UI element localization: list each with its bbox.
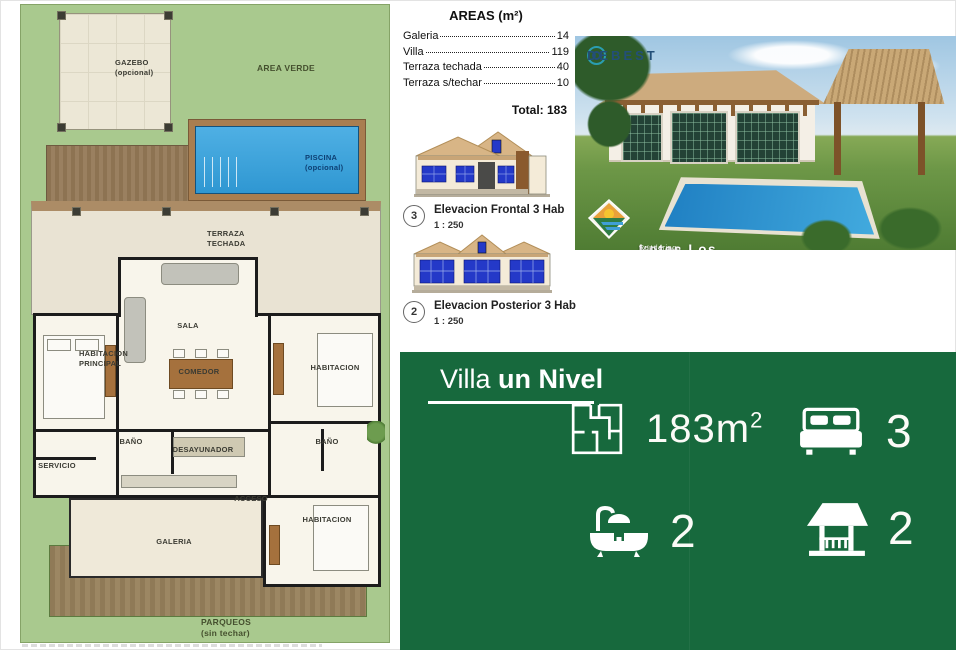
interior-wall (36, 457, 96, 460)
panel-title: Villa un Nivel (440, 364, 603, 395)
area-superscript: 2 (750, 407, 763, 432)
bed-icon (798, 407, 864, 455)
elevation-title: Elevacion Frontal 3 Hab (434, 204, 564, 218)
info-panel: Villa un Nivel 183m2 3 (400, 352, 956, 650)
area-value: 183m2 (646, 407, 763, 452)
desayunador-label: DESAYUNADOR (155, 445, 251, 455)
dotted-leader (484, 83, 555, 84)
column-icon (72, 207, 81, 216)
habitacion-principal-label-1: HABITACION (79, 349, 128, 359)
comedor-label: COMEDOR (159, 367, 239, 377)
dotted-leader (426, 52, 550, 53)
bathrooms-count: 2 (670, 504, 697, 558)
gazebo-area: GAZEBO (opcional) (59, 13, 171, 130)
closet (269, 525, 280, 565)
wood-deck (46, 145, 190, 203)
galeria-label: GALERIA (139, 537, 209, 547)
gazebo-post-icon (164, 11, 173, 20)
elevation-frontal-drawing (405, 126, 559, 209)
elevation-number-badge: 2 (403, 301, 425, 323)
stat-bathrooms: 2 (586, 502, 697, 560)
dotted-leader (440, 36, 554, 37)
elevation-number-badge: 3 (403, 205, 425, 227)
area-row-value: 40 (557, 60, 569, 76)
area-row-label: Villa (403, 45, 424, 61)
elevation-frontal-label: 3 Elevacion Frontal 3 Hab 1 : 250 (403, 204, 564, 231)
piscina-label: PISCINA (305, 153, 337, 163)
pool-water: PISCINA (opcional) (195, 126, 359, 194)
areas-table: AREAS (m²) Galeria 14 Villa 119 Terraza … (403, 8, 569, 117)
kitchen-counter (121, 475, 237, 488)
areas-title: AREAS (m²) (403, 8, 569, 23)
pool-area: PISCINA (opcional) (188, 119, 366, 201)
column-icon (270, 207, 279, 216)
gazebo-sublabel: (opcional) (115, 68, 153, 78)
elevation-scale: 1 : 250 (434, 316, 576, 327)
gazebo-post-icon (57, 123, 66, 132)
acceso-label: ACCESO (221, 494, 281, 504)
brand-logo: DEBEST (587, 46, 606, 65)
plant-icon (367, 421, 385, 449)
interior-wall (321, 429, 324, 471)
elevation-posterior-label: 2 Elevacion Posterior 3 Hab 1 : 250 (403, 300, 576, 327)
piscina-sublabel: (opcional) (305, 163, 343, 173)
los-fundadores-emblem-icon (587, 198, 631, 240)
caption-disclaimer: Rendering no contractual sujeto a cambio… (639, 245, 681, 250)
habitacion-right-label: HABITACION (297, 363, 373, 373)
sala-label: SALA (158, 321, 218, 331)
habitacion-principal-label-2: PRINCIPAL (79, 359, 121, 369)
stat-bedrooms: 3 (798, 404, 913, 458)
bush (872, 203, 948, 250)
terraza-label-1: TERRAZA (207, 229, 245, 239)
villa-render-photo: DEBEST Lotes Los Fundadores. Villa un ni… (575, 36, 956, 250)
elevation-title: Elevacion Posterior 3 Hab (434, 300, 576, 314)
chair (195, 390, 207, 399)
table-row: Galeria 14 (403, 29, 569, 45)
stat-area: 183m2 (568, 400, 763, 458)
interior-wall (36, 429, 269, 432)
glass-door (735, 111, 800, 164)
area-row-label: Terraza s/techar (403, 76, 482, 92)
pool-steps (204, 157, 238, 187)
areas-total: Total: 183 (403, 103, 569, 117)
area-row-label: Terraza techada (403, 60, 482, 76)
stat-gazebos: 2 (804, 498, 915, 558)
dresser (273, 343, 284, 395)
interior-wall (116, 316, 119, 496)
frontal-elevation-icon (405, 126, 559, 204)
chair (195, 349, 207, 358)
chair (217, 349, 229, 358)
chair (217, 390, 229, 399)
bathtub-icon (586, 502, 652, 560)
parqueos-sublabel: (sin techar) (201, 628, 250, 639)
gazebo-post-icon (57, 11, 66, 20)
glass-door (670, 111, 727, 164)
area-row-value: 10 (557, 76, 569, 92)
bano-right-label: BAÑO (305, 437, 349, 447)
area-row-label: Galeria (403, 29, 438, 45)
gazebo-post-icon (164, 123, 173, 132)
gazebo-post (834, 102, 841, 175)
interior-wall (268, 316, 271, 496)
table-row: Terraza s/techar 10 (403, 76, 569, 92)
table-row: Terraza techada 40 (403, 60, 569, 76)
floorplan-icon (568, 400, 626, 458)
site-plan: GAZEBO (opcional) AREA VERDE PISCINA (op… (20, 4, 390, 643)
chair (173, 390, 185, 399)
area-verde-label: AREA VERDE (221, 63, 351, 74)
area-row-value: 119 (551, 45, 569, 61)
column-icon (162, 207, 171, 216)
bano-left-label: BAÑO (109, 437, 153, 447)
elevation-scale: 1 : 250 (434, 220, 564, 231)
cloud (727, 40, 857, 70)
table-row: Villa 119 (403, 45, 569, 61)
panel-title-regular: Villa (440, 364, 498, 394)
column-icon (360, 207, 369, 216)
brand-name: DEBEST (587, 48, 658, 63)
chair (173, 349, 185, 358)
gazebo-label: GAZEBO (115, 58, 149, 68)
habitacion-bottom-label: HABITACION (289, 515, 365, 525)
terraza-label-2: TECHADA (207, 239, 245, 249)
gazebo-post (918, 102, 925, 175)
posterior-elevation-icon (405, 232, 559, 298)
footer-fineprint-line (22, 644, 322, 647)
palm-tree (583, 96, 636, 152)
panel-title-bold: un Nivel (498, 364, 603, 394)
elevation-posterior-drawing (405, 232, 559, 303)
interior-wall (271, 421, 379, 424)
bedrooms-count: 3 (886, 404, 913, 458)
servicio-label: SERVICIO (27, 461, 87, 471)
gazebos-count: 2 (888, 501, 915, 555)
bush (796, 216, 857, 250)
parqueos-label: PARQUEOS (201, 617, 251, 628)
dotted-leader (484, 67, 555, 68)
gazebo-icon (804, 498, 872, 558)
sofa (161, 263, 239, 285)
area-row-value: 14 (557, 29, 569, 45)
